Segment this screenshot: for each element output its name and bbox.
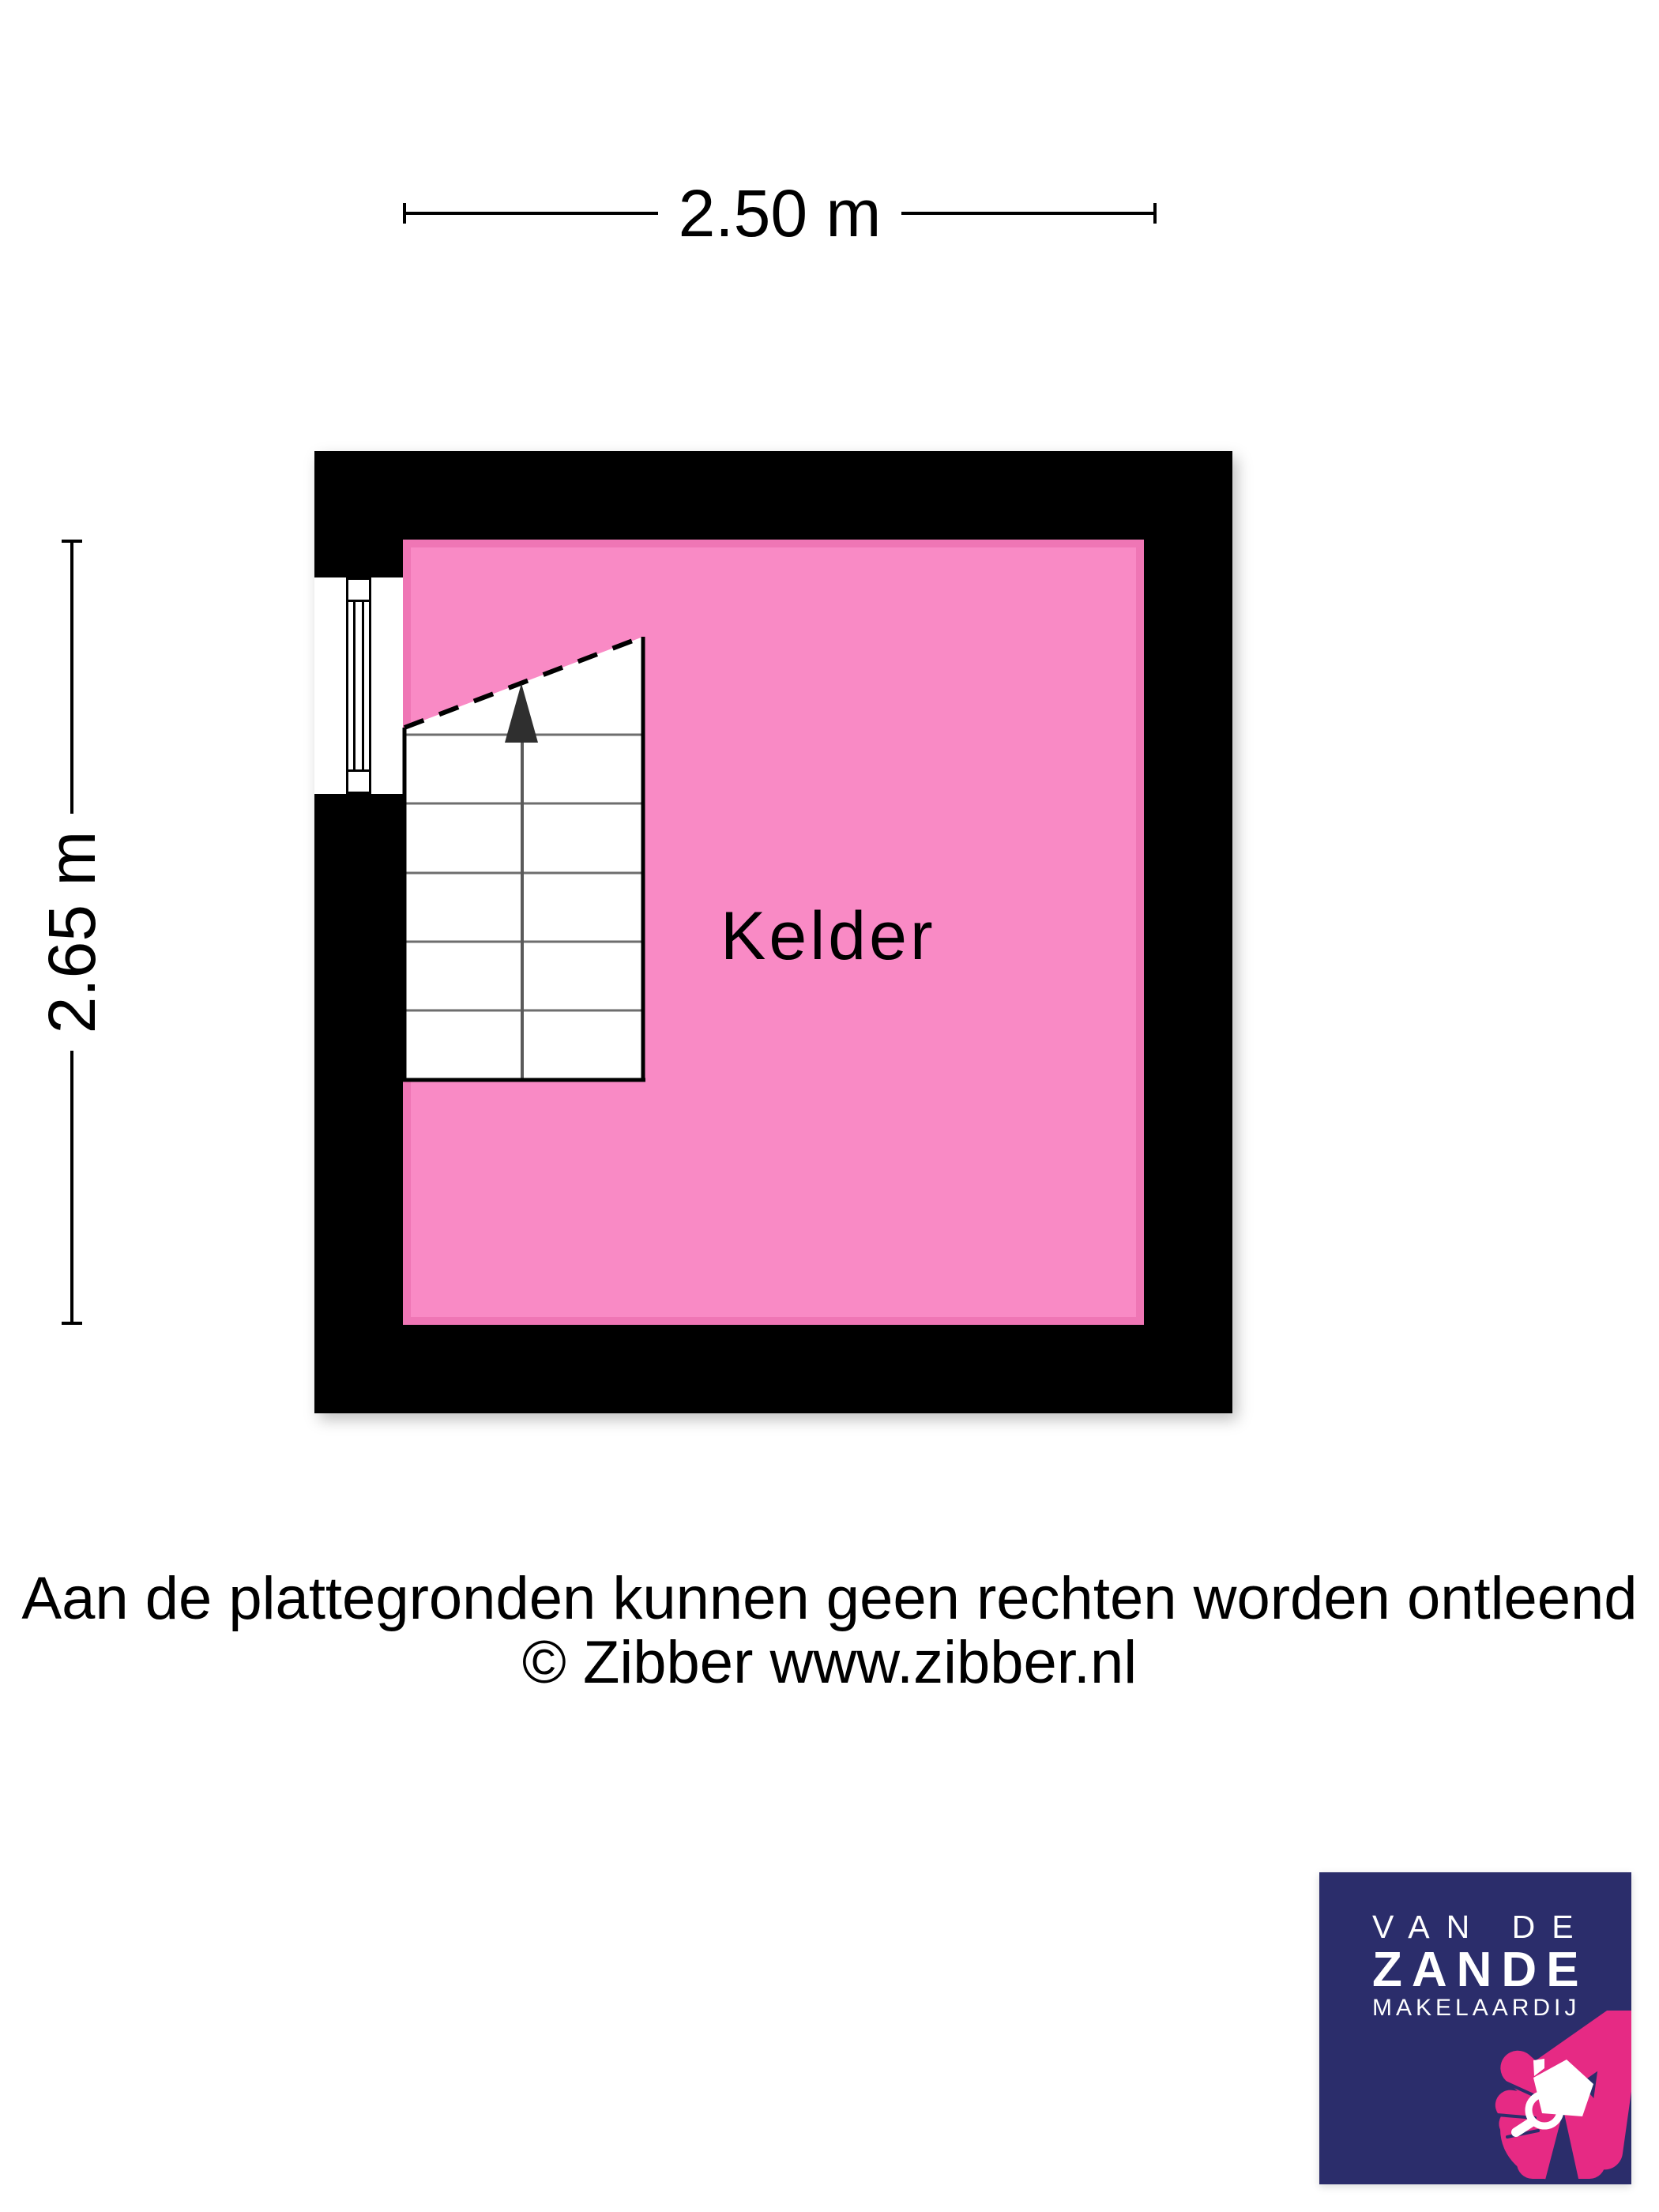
- dimension-line: [70, 543, 73, 814]
- hand-house-magnifier-icon: [1442, 2011, 1631, 2184]
- disclaimer: Aan de plattegronden kunnen geen rechten…: [0, 1567, 1659, 1695]
- height-dimension: 2.65 m: [28, 540, 115, 1325]
- floor-plan: Kelder: [314, 451, 1232, 1413]
- dimension-line: [406, 212, 658, 215]
- width-dimension: 2.50 m: [403, 170, 1157, 257]
- width-dimension-label: 2.50 m: [658, 180, 902, 246]
- dimension-tick-bottom: [62, 1322, 82, 1325]
- dimension-tick-right: [1153, 203, 1157, 224]
- height-dimension-label: 2.65 m: [28, 814, 115, 1051]
- room-label: Kelder: [720, 902, 936, 970]
- dimension-line: [901, 212, 1153, 215]
- logo-line-main: ZANDE: [1372, 1946, 1589, 1995]
- logo-line-top: VAN DE: [1372, 1911, 1590, 1943]
- copyright-text: © Zibber www.zibber.nl: [0, 1631, 1659, 1695]
- floorplan-page: 2.50 m 2.65 m: [0, 0, 1659, 2212]
- disclaimer-text: Aan de plattegronden kunnen geen rechten…: [0, 1567, 1659, 1631]
- dimension-line: [70, 1051, 73, 1322]
- agency-logo: VAN DE ZANDE MAKELAARDIJ: [1319, 1872, 1631, 2184]
